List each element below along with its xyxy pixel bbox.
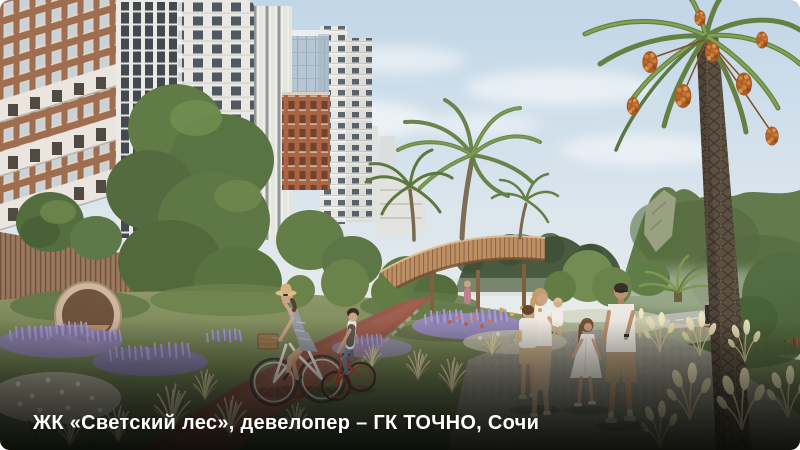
light-wash bbox=[0, 0, 800, 450]
photo-caption: ЖК «Светский лес», девелопер – ГК ТОЧНО,… bbox=[33, 412, 539, 435]
hero-photo: ЖК «Светский лес», девелопер – ГК ТОЧНО,… bbox=[0, 0, 800, 450]
scene-illustration bbox=[0, 0, 800, 450]
